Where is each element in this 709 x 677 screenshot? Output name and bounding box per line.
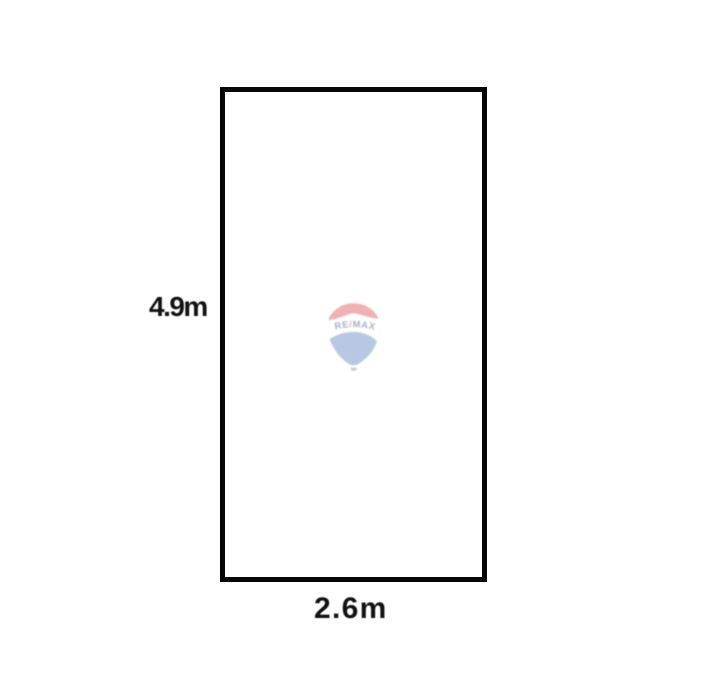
svg-text:RE/MAX: RE/MAX <box>333 318 377 332</box>
